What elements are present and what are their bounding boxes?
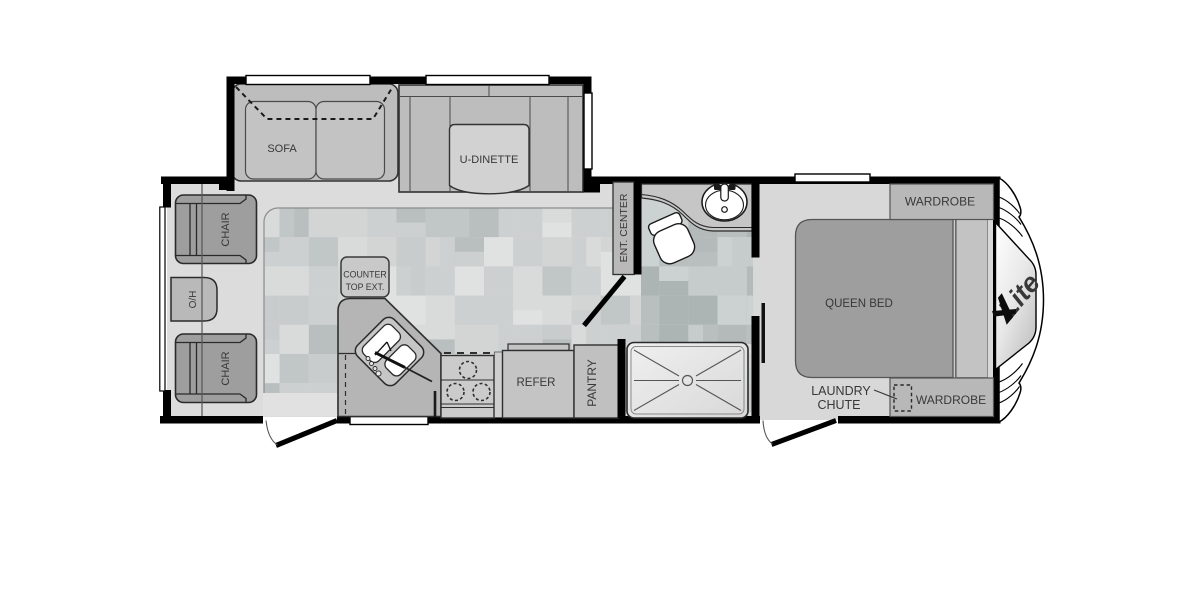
- svg-text:WARDROBE: WARDROBE: [916, 393, 986, 407]
- svg-text:CHAIR: CHAIR: [220, 212, 232, 246]
- svg-text:SOFA: SOFA: [267, 143, 297, 155]
- svg-text:TOP EXT.: TOP EXT.: [346, 282, 385, 292]
- svg-text:O/H: O/H: [188, 291, 199, 309]
- svg-text:ENT. CENTER: ENT. CENTER: [618, 193, 630, 262]
- svg-text:PANTRY: PANTRY: [585, 359, 599, 407]
- svg-text:WARDROBE: WARDROBE: [905, 195, 975, 209]
- svg-text:LAUNDRY: LAUNDRY: [811, 384, 871, 398]
- svg-text:CHUTE: CHUTE: [817, 398, 860, 412]
- svg-text:COUNTER: COUNTER: [343, 270, 387, 280]
- svg-text:REFER: REFER: [517, 377, 556, 389]
- svg-text:CHAIR: CHAIR: [220, 351, 232, 385]
- svg-text:QUEEN BED: QUEEN BED: [825, 298, 893, 310]
- svg-text:U-DINETTE: U-DINETTE: [460, 154, 519, 166]
